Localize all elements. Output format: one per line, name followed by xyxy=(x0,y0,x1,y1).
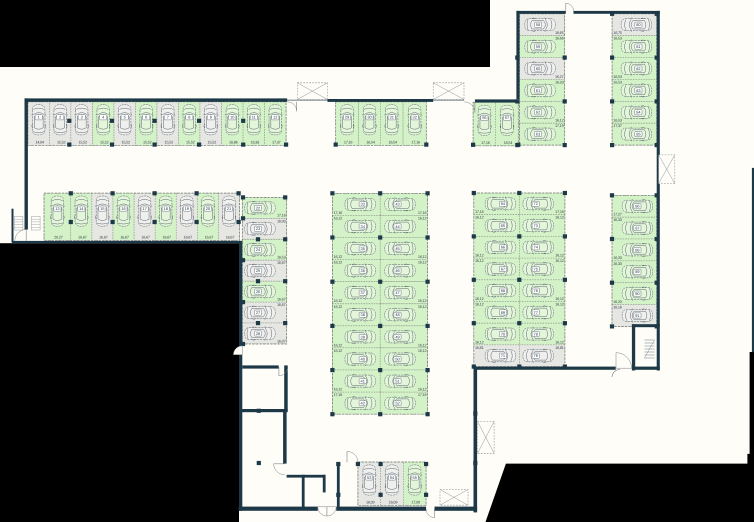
svg-text:16,12: 16,12 xyxy=(475,216,484,220)
svg-text:16,54: 16,54 xyxy=(504,141,513,145)
svg-text:16,12: 16,12 xyxy=(334,216,343,220)
svg-text:66: 66 xyxy=(501,245,505,250)
svg-text:16,12: 16,12 xyxy=(334,388,343,392)
svg-text:1: 1 xyxy=(38,115,40,120)
svg-text:16,12: 16,12 xyxy=(418,305,427,309)
svg-text:56: 56 xyxy=(482,115,486,120)
svg-text:16,09: 16,09 xyxy=(389,501,398,505)
svg-text:28: 28 xyxy=(256,331,260,336)
svg-text:16,67: 16,67 xyxy=(277,261,286,265)
svg-text:59: 59 xyxy=(536,44,540,49)
svg-text:16,86: 16,86 xyxy=(229,141,238,145)
svg-text:41: 41 xyxy=(361,379,365,384)
svg-text:16,12: 16,12 xyxy=(334,343,343,347)
svg-text:51: 51 xyxy=(395,379,399,384)
svg-text:16,27: 16,27 xyxy=(555,75,564,79)
svg-text:16,00: 16,00 xyxy=(277,219,286,223)
svg-text:16,33: 16,33 xyxy=(613,256,622,260)
svg-text:16,20: 16,20 xyxy=(613,300,622,304)
svg-text:16,66: 16,66 xyxy=(555,37,564,41)
svg-text:46: 46 xyxy=(395,268,399,273)
svg-text:16,67: 16,67 xyxy=(78,236,87,240)
svg-text:16,12: 16,12 xyxy=(475,254,484,258)
svg-text:20,27: 20,27 xyxy=(54,236,63,240)
svg-text:33: 33 xyxy=(361,202,365,207)
svg-text:16,81: 16,81 xyxy=(475,346,484,350)
svg-text:18: 18 xyxy=(164,206,168,211)
svg-text:62: 62 xyxy=(536,110,540,115)
svg-text:16,53: 16,53 xyxy=(277,256,286,260)
svg-text:16,12: 16,12 xyxy=(475,297,484,301)
svg-text:16,12: 16,12 xyxy=(334,305,343,309)
svg-text:38: 38 xyxy=(361,312,365,317)
svg-text:25: 25 xyxy=(256,268,260,273)
svg-text:14,04: 14,04 xyxy=(35,141,44,145)
svg-text:43: 43 xyxy=(395,202,399,207)
svg-text:23: 23 xyxy=(256,226,260,231)
svg-text:15,52: 15,52 xyxy=(100,141,109,145)
svg-text:16,12: 16,12 xyxy=(475,340,484,344)
svg-text:65: 65 xyxy=(501,223,505,228)
svg-text:16,67: 16,67 xyxy=(99,236,108,240)
svg-text:31: 31 xyxy=(390,115,394,120)
svg-text:17,19: 17,19 xyxy=(555,124,564,128)
svg-text:16,65: 16,65 xyxy=(555,31,564,35)
svg-text:36: 36 xyxy=(361,268,365,273)
svg-text:15,52: 15,52 xyxy=(78,141,87,145)
svg-text:12: 12 xyxy=(273,115,277,120)
svg-text:85: 85 xyxy=(636,132,640,137)
svg-text:9: 9 xyxy=(210,115,212,120)
svg-text:16,54: 16,54 xyxy=(388,141,397,145)
svg-text:16,12: 16,12 xyxy=(418,299,427,303)
svg-text:17,16: 17,16 xyxy=(418,393,427,397)
svg-text:16,75: 16,75 xyxy=(613,31,622,35)
svg-text:17,16: 17,16 xyxy=(481,141,490,145)
svg-text:16,12: 16,12 xyxy=(555,297,564,301)
svg-text:5: 5 xyxy=(124,115,126,120)
svg-text:16,67: 16,67 xyxy=(162,236,171,240)
svg-text:17,16: 17,16 xyxy=(334,211,343,215)
svg-text:39: 39 xyxy=(361,334,365,339)
svg-text:72: 72 xyxy=(534,201,538,206)
svg-text:22: 22 xyxy=(256,205,260,210)
svg-text:32: 32 xyxy=(413,115,417,120)
svg-text:48: 48 xyxy=(395,312,399,317)
svg-text:16,12: 16,12 xyxy=(475,303,484,307)
svg-text:17,16: 17,16 xyxy=(411,141,420,145)
svg-text:16,67: 16,67 xyxy=(141,236,150,240)
svg-text:71: 71 xyxy=(501,353,505,358)
svg-text:81: 81 xyxy=(636,44,640,49)
svg-text:16,12: 16,12 xyxy=(418,343,427,347)
svg-text:11: 11 xyxy=(252,115,256,120)
svg-text:91: 91 xyxy=(635,313,639,318)
svg-text:21: 21 xyxy=(227,206,231,211)
svg-text:16,33: 16,33 xyxy=(251,141,260,145)
svg-text:15: 15 xyxy=(100,206,104,211)
svg-text:15,52: 15,52 xyxy=(208,141,217,145)
svg-text:16,12: 16,12 xyxy=(555,216,564,220)
svg-text:17,16: 17,16 xyxy=(475,210,484,214)
svg-text:73: 73 xyxy=(534,223,538,228)
svg-text:16,54: 16,54 xyxy=(366,141,375,145)
svg-text:57: 57 xyxy=(505,115,509,120)
svg-text:7: 7 xyxy=(167,115,169,120)
svg-text:29: 29 xyxy=(345,115,349,120)
svg-text:16,12: 16,12 xyxy=(555,254,564,258)
svg-text:8: 8 xyxy=(188,115,190,120)
svg-text:16,12: 16,12 xyxy=(334,299,343,303)
svg-text:16,12: 16,12 xyxy=(418,216,427,220)
svg-text:16,53: 16,53 xyxy=(613,37,622,41)
svg-text:15,52: 15,52 xyxy=(121,141,130,145)
svg-text:16,67: 16,67 xyxy=(184,236,193,240)
svg-text:27: 27 xyxy=(256,310,260,315)
svg-text:16,12: 16,12 xyxy=(555,303,564,307)
svg-text:16,33: 16,33 xyxy=(613,218,622,222)
svg-text:19: 19 xyxy=(185,206,189,211)
svg-text:83: 83 xyxy=(636,88,640,93)
svg-text:17,37: 17,37 xyxy=(613,124,622,128)
svg-text:15,52: 15,52 xyxy=(143,141,152,145)
svg-text:16,09: 16,09 xyxy=(366,501,375,505)
svg-text:16,12: 16,12 xyxy=(555,259,564,263)
svg-text:16,33: 16,33 xyxy=(555,80,564,84)
svg-text:77: 77 xyxy=(534,310,538,315)
svg-text:17,16: 17,16 xyxy=(344,141,353,145)
svg-text:16,12: 16,12 xyxy=(475,259,484,263)
svg-text:49: 49 xyxy=(395,334,399,339)
svg-text:37: 37 xyxy=(361,290,365,295)
svg-text:16,67: 16,67 xyxy=(277,303,286,307)
svg-text:16,12: 16,12 xyxy=(334,255,343,259)
svg-text:16,67: 16,67 xyxy=(120,236,129,240)
svg-text:15,52: 15,52 xyxy=(165,141,174,145)
svg-text:16,07: 16,07 xyxy=(277,339,286,343)
svg-text:82: 82 xyxy=(636,66,640,71)
svg-text:6: 6 xyxy=(145,115,147,120)
svg-text:35: 35 xyxy=(361,246,365,251)
svg-text:75: 75 xyxy=(534,266,538,271)
svg-text:16,12: 16,12 xyxy=(555,119,564,123)
svg-text:78: 78 xyxy=(534,331,538,336)
svg-text:45: 45 xyxy=(395,246,399,251)
svg-text:3: 3 xyxy=(81,115,83,120)
svg-text:52: 52 xyxy=(395,401,399,406)
svg-text:63: 63 xyxy=(536,132,540,137)
svg-text:76: 76 xyxy=(534,288,538,293)
svg-text:17,16: 17,16 xyxy=(418,211,427,215)
svg-text:2: 2 xyxy=(59,115,61,120)
svg-text:17,16: 17,16 xyxy=(334,393,343,397)
svg-text:16,12: 16,12 xyxy=(555,340,564,344)
svg-text:15,52: 15,52 xyxy=(57,141,66,145)
svg-text:16,81: 16,81 xyxy=(555,346,564,350)
svg-text:16,12: 16,12 xyxy=(418,388,427,392)
svg-text:58: 58 xyxy=(536,22,540,27)
svg-text:17,16: 17,16 xyxy=(555,210,564,214)
svg-text:17: 17 xyxy=(142,206,146,211)
svg-text:26: 26 xyxy=(256,289,260,294)
svg-text:16,67: 16,67 xyxy=(226,236,235,240)
svg-text:17,37: 17,37 xyxy=(272,141,281,145)
svg-text:42: 42 xyxy=(361,401,365,406)
svg-text:53: 53 xyxy=(367,475,371,480)
svg-text:68: 68 xyxy=(501,288,505,293)
svg-text:17,09: 17,09 xyxy=(411,501,420,505)
svg-text:16,53: 16,53 xyxy=(613,119,622,123)
svg-text:89: 89 xyxy=(635,269,639,274)
svg-text:16,12: 16,12 xyxy=(334,349,343,353)
svg-text:61: 61 xyxy=(536,88,540,93)
svg-text:55: 55 xyxy=(413,475,417,480)
svg-text:13: 13 xyxy=(55,206,59,211)
svg-text:17,16: 17,16 xyxy=(277,214,286,218)
svg-text:17,27: 17,27 xyxy=(613,213,622,217)
svg-text:16: 16 xyxy=(121,206,125,211)
svg-text:47: 47 xyxy=(395,290,399,295)
svg-text:16,12: 16,12 xyxy=(334,261,343,265)
svg-text:67: 67 xyxy=(501,266,505,271)
svg-text:16,67: 16,67 xyxy=(277,298,286,302)
svg-text:16,33: 16,33 xyxy=(613,262,622,266)
svg-text:86: 86 xyxy=(635,204,639,209)
svg-text:16,16: 16,16 xyxy=(613,306,622,310)
svg-text:16,53: 16,53 xyxy=(613,80,622,84)
svg-text:16,67: 16,67 xyxy=(205,236,214,240)
svg-text:16,12: 16,12 xyxy=(418,255,427,259)
svg-text:88: 88 xyxy=(635,247,639,252)
svg-text:69: 69 xyxy=(501,310,505,315)
svg-text:15,52: 15,52 xyxy=(186,141,195,145)
svg-text:16,12: 16,12 xyxy=(418,349,427,353)
svg-text:87: 87 xyxy=(635,226,639,231)
svg-text:16,12: 16,12 xyxy=(418,261,427,265)
svg-text:16,53: 16,53 xyxy=(613,75,622,79)
svg-text:79: 79 xyxy=(534,353,538,358)
